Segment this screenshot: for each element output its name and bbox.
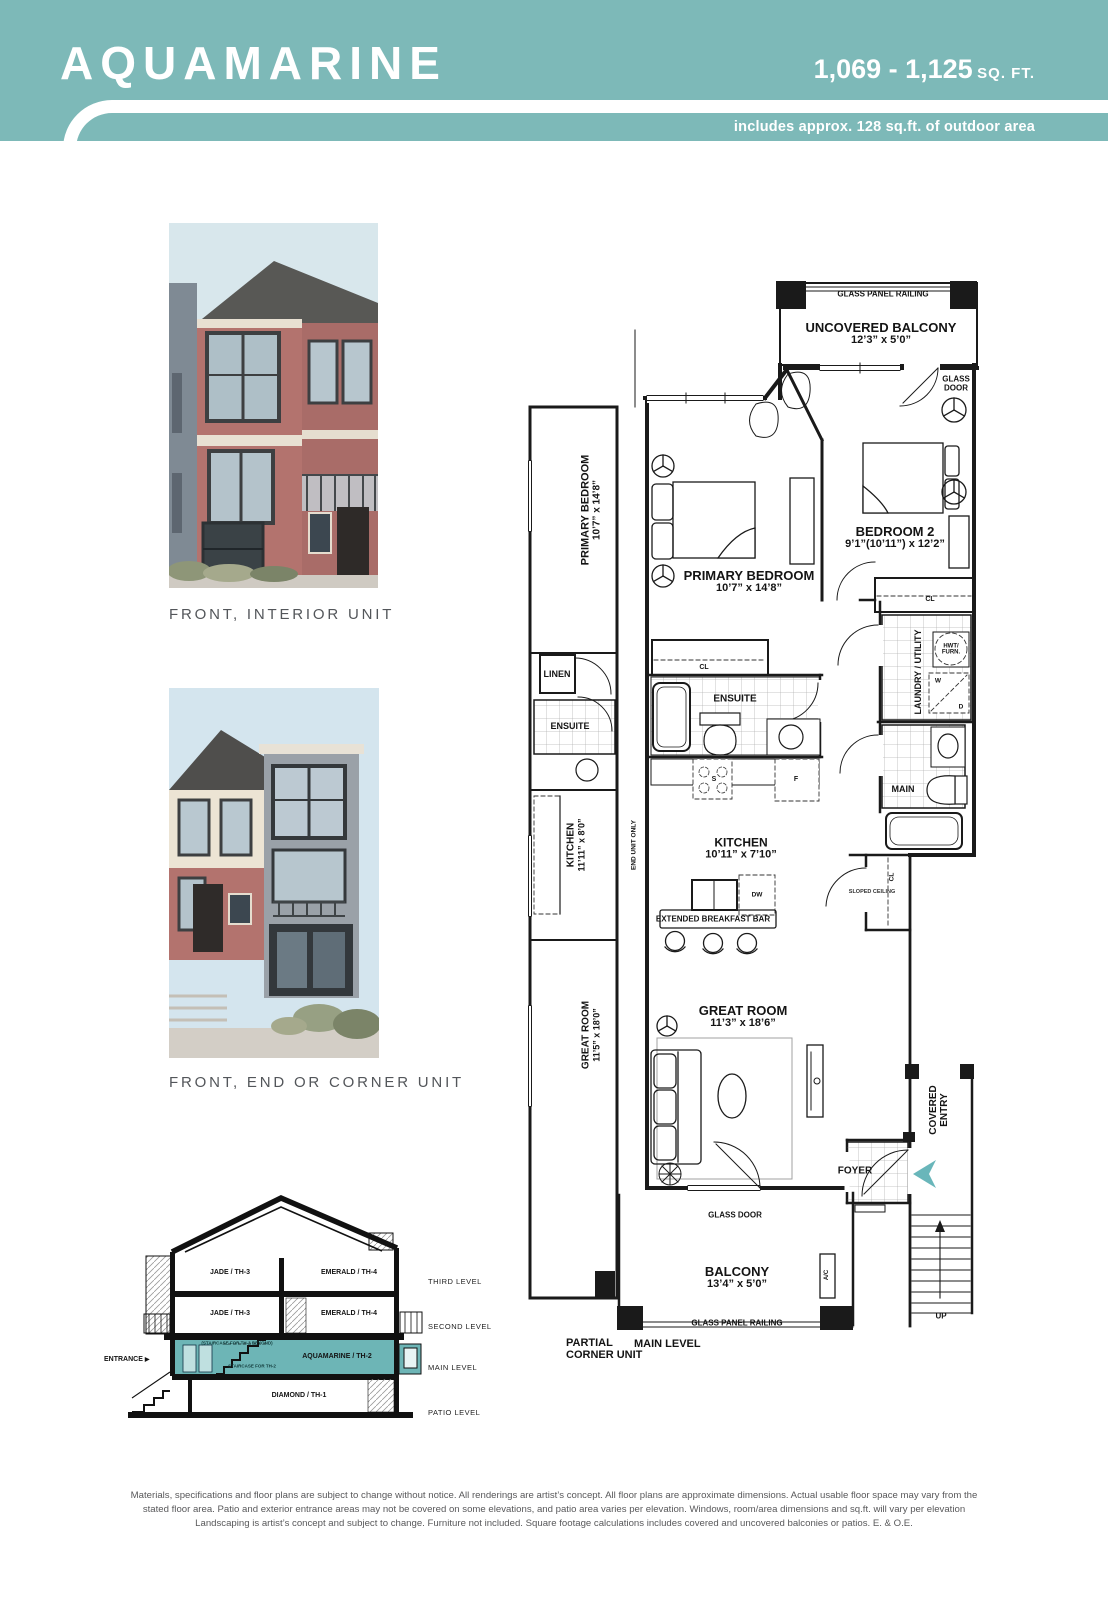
entrance-arrow-icon: ▶ — [145, 1357, 150, 1363]
toilet-icon — [927, 776, 955, 804]
label-great-room: GREAT ROOM 11’3” x 18’6” — [699, 1004, 788, 1030]
caption-front-interior: FRONT, INTERIOR UNIT — [169, 606, 394, 623]
level-label-third: THIRD LEVEL — [428, 1278, 482, 1286]
caption-front-end-corner: FRONT, END OR CORNER UNIT — [169, 1074, 464, 1091]
disclaimer: Materials, specifications and floor plan… — [54, 1489, 1054, 1530]
rendering-front-end-corner — [169, 688, 379, 1058]
label-cl-primary: CL — [699, 664, 708, 672]
label-washer: W — [935, 677, 941, 684]
label-laundry-utility: LAUNDRY / UTILITY — [914, 630, 924, 715]
floorplan-sheet: AQUAMARINE 1,069 - 1,125 SQ. FT. include… — [0, 0, 1108, 1600]
label-strip-kitchen: KITCHEN 11’11” x 8’0” — [567, 818, 588, 871]
label-bedroom2: BEDROOM 2 9’1”(10’11”) x 12’2” — [845, 525, 945, 551]
media-unit — [807, 1045, 823, 1117]
label-hwt-furn: HWT/ FURN. — [942, 644, 960, 657]
wardrobe — [790, 478, 814, 564]
label-glass-panel-railing-top: GLASS PANEL RAILING — [837, 291, 928, 300]
label-balcony: BALCONY 13’4” x 5’0” — [705, 1265, 769, 1291]
label-sloped-ceiling: SLOPED CEILING — [849, 890, 895, 896]
label-glass-door-bottom: GLASS DOOR — [708, 1212, 762, 1221]
section-second-right: EMERALD / TH-4 — [321, 1310, 377, 1318]
sqft-unit: SQ. FT. — [977, 65, 1035, 82]
label-breakfast-bar: EXTENDED BREAKFAST BAR — [656, 916, 770, 925]
plant-icon — [659, 1163, 681, 1185]
label-stove: S — [712, 776, 717, 784]
page-title: AQUAMARINE — [60, 36, 447, 90]
floorplan-drawing — [520, 276, 990, 1366]
section-main-band: AQUAMARINE / TH-2 — [302, 1353, 372, 1361]
sink-icon — [576, 759, 598, 781]
label-ac: A/C — [824, 1270, 830, 1280]
label-covered-entry: COVERED ENTRY — [929, 1085, 951, 1134]
bathtub-icon — [653, 683, 690, 751]
level-label-main: MAIN LEVEL — [428, 1364, 477, 1372]
bar-stool-icon — [665, 932, 757, 954]
label-dryer: D — [959, 703, 964, 710]
toilet-icon — [704, 725, 736, 755]
label-uncovered-balcony: UNCOVERED BALCONY 12’3” x 5’0” — [806, 321, 957, 347]
section-note-upper: (STAIRCASE FOR TH-3 BEYOND) — [201, 1342, 272, 1347]
label-end-unit-only: END UNIT ONLY — [630, 820, 637, 870]
label-strip-primary-bedroom: PRIMARY BEDROOM 10’7” x 14’8” — [581, 455, 604, 566]
potlight-icon — [657, 1016, 677, 1036]
rendering-front-interior — [169, 223, 378, 588]
bedroom2-bed — [863, 443, 959, 513]
label-ensuite-main: ENSUITE — [713, 695, 756, 706]
roof-line — [172, 1198, 397, 1252]
label-main-level: MAIN LEVEL — [634, 1339, 701, 1351]
label-cl-bedroom2: CL — [925, 596, 934, 604]
label-main-bath: MAIN — [892, 785, 915, 795]
bathtub-icon — [886, 813, 962, 849]
section-note-lower: STAIRCASE FOR TH-2 — [228, 1365, 276, 1370]
section-entrance: ENTRANCE ▶ — [104, 1356, 149, 1364]
label-foyer: FOYER — [838, 1167, 872, 1178]
label-primary-bedroom: PRIMARY BEDROOM 10’7” x 14’8” — [684, 569, 815, 595]
potlight-icon — [652, 455, 674, 587]
section-third-right: EMERALD / TH-4 — [321, 1269, 377, 1277]
outdoor-area-note: includes approx. 128 sq.ft. of outdoor a… — [734, 119, 1035, 135]
label-kitchen: KITCHEN 10’11” x 7’10” — [705, 837, 777, 862]
coffee-table — [718, 1074, 746, 1118]
section-third-left: JADE / TH-3 — [210, 1269, 250, 1277]
label-fridge: F — [794, 776, 798, 784]
sofa — [651, 1050, 701, 1164]
label-cl-hall: CL — [888, 873, 895, 882]
label-strip-great-room: GREAT ROOM 11’5” x 18’0” — [582, 1001, 603, 1069]
label-glass-panel-railing-bottom: GLASS PANEL RAILING — [691, 1320, 782, 1329]
label-ensuite-left: ENSUITE — [550, 722, 589, 732]
sqft-number: 1,069 - 1,125 — [814, 54, 973, 84]
section-second-left: JADE / TH-3 — [210, 1310, 250, 1318]
label-glass-door-top: GLASS DOOR — [942, 375, 970, 392]
entry-arrow-icon — [913, 1160, 936, 1188]
sqft-range: 1,069 - 1,125 SQ. FT. — [814, 54, 1035, 85]
label-partial-corner-unit: PARTIAL CORNER UNIT — [566, 1338, 642, 1362]
label-linen: LINEN — [544, 670, 571, 680]
level-label-patio: PATIO LEVEL — [428, 1409, 480, 1417]
level-label-second: SECOND LEVEL — [428, 1323, 492, 1331]
label-dishwasher: DW — [752, 891, 763, 898]
primary-bed — [652, 482, 755, 559]
section-patio-band: DIAMOND / TH-1 — [272, 1392, 327, 1400]
label-up: UP — [935, 1313, 946, 1322]
